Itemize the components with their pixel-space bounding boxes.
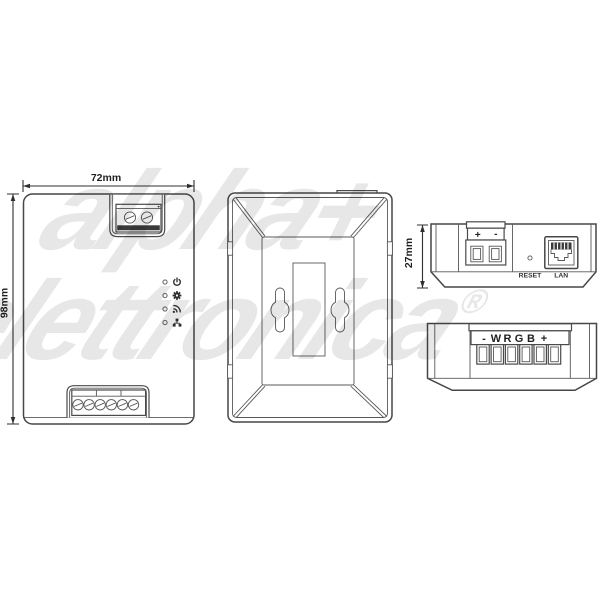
side-clip [228,365,233,378]
reset-label: RESET [519,273,543,280]
product-diagram: 72mm 98mm [0,0,600,600]
power-terminal: + - [466,222,506,265]
led-indicator [163,293,167,297]
lan-label: LAN [554,273,568,280]
width-dimension-label: 72mm [91,172,121,184]
height-dimension: 98mm [0,194,19,424]
led-indicator [163,280,167,284]
terminal-label: B [527,333,535,345]
led-indicator [163,307,167,311]
plus-label: + [475,230,481,241]
terminal-label: W [491,333,502,345]
marker-dot [158,206,160,208]
screw-terminal-top [110,195,165,237]
led-indicator [163,320,167,324]
screw-terminal-bottom [67,386,149,418]
arrow-right-icon [187,184,194,189]
terminal-label: G [515,333,524,345]
rgbw-terminal: - W R G B + [469,324,572,364]
terminal-label: - [482,333,486,345]
depth-dimension: 27mm [403,225,428,288]
arrow-left-icon [23,184,30,189]
terminal-label: + [541,333,547,345]
arrow-up-icon [11,194,16,201]
arrow-down-icon [11,417,16,424]
top-side-view: 27mm + - RESET LAN [403,222,596,288]
width-dimension: 72mm [23,172,194,192]
front-view: 72mm 98mm [0,172,194,424]
bottom-side-view: - W R G B + [428,324,597,391]
reset-hole [528,256,532,260]
arrow-up-icon [420,225,425,232]
height-dimension-label: 98mm [0,288,11,318]
side-clip [387,365,392,378]
back-view [228,191,393,422]
terminal-label: R [504,333,512,345]
minus-label: - [494,229,497,240]
side-clip [387,242,392,255]
back-body [228,193,392,422]
technical-drawing: 72mm 98mm [0,0,600,600]
gear-icon [173,291,182,300]
side-clip [228,242,233,255]
arrow-down-icon [420,281,425,288]
depth-dimension-label: 27mm [403,238,415,268]
